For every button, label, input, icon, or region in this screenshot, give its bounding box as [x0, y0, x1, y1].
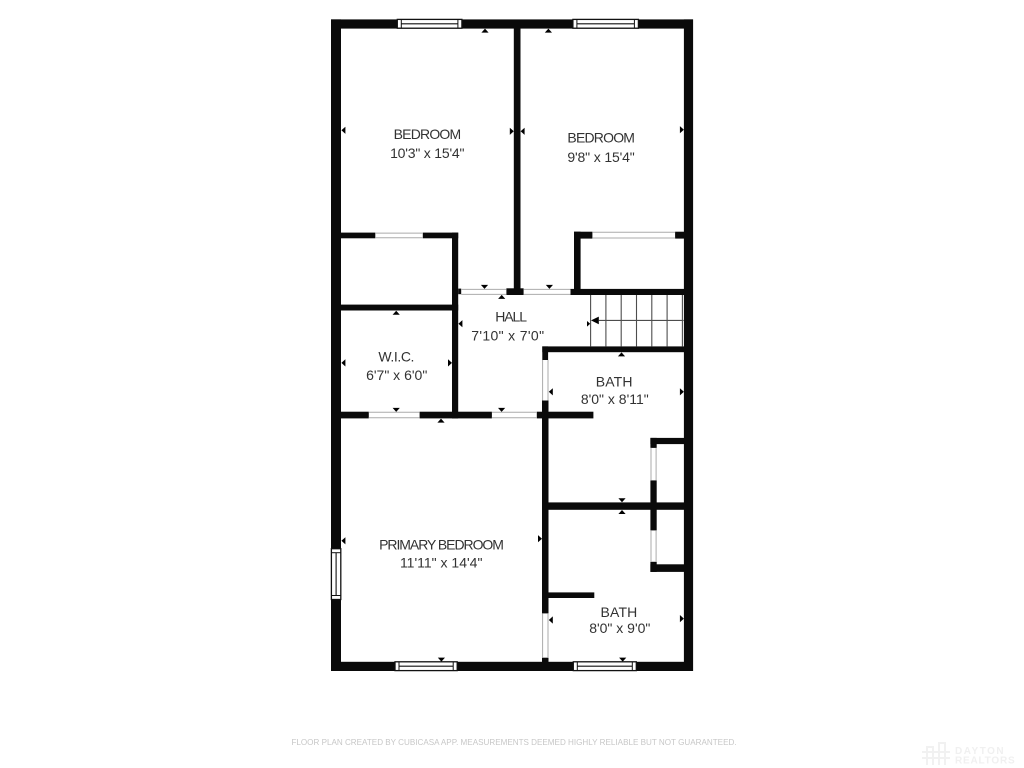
svg-text:7'10" x 7'0": 7'10" x 7'0": [471, 328, 544, 344]
svg-text:6'7" x 6'0": 6'7" x 6'0": [366, 367, 427, 383]
svg-text:BEDROOM: BEDROOM: [567, 129, 634, 145]
svg-text:BATH: BATH: [596, 374, 633, 390]
svg-text:W.I.C.: W.I.C.: [378, 348, 414, 364]
svg-text:9'8" x 15'4": 9'8" x 15'4": [567, 149, 634, 165]
svg-text:FLOOR PLAN CREATED BY CUBICASA: FLOOR PLAN CREATED BY CUBICASA APP. MEAS…: [291, 738, 736, 747]
svg-text:BEDROOM: BEDROOM: [394, 126, 461, 142]
svg-text:8'0" x 8'11": 8'0" x 8'11": [581, 391, 649, 407]
svg-text:PRIMARY BEDROOM: PRIMARY BEDROOM: [379, 536, 503, 552]
svg-text:11'11" x 14'4": 11'11" x 14'4": [400, 554, 483, 570]
svg-text:BATH: BATH: [601, 604, 638, 620]
svg-text:8'0" x 9'0": 8'0" x 9'0": [589, 620, 650, 636]
svg-text:10'3" x 15'4": 10'3" x 15'4": [390, 145, 464, 161]
svg-text:HALL: HALL: [495, 308, 527, 324]
svg-text:REALTORS: REALTORS: [955, 756, 1015, 767]
